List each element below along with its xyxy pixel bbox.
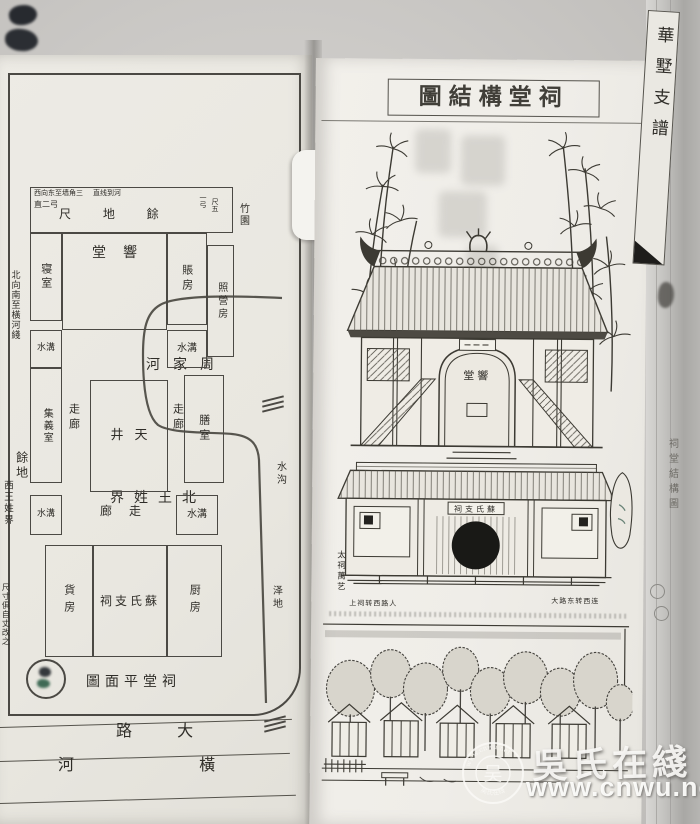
book-spine: 華墅支譜 祠堂結構圖 <box>646 0 700 824</box>
bamboo-garden-label: 竹園 <box>237 203 248 227</box>
corner-seal-circle <box>26 659 66 699</box>
room-gutter-sw: 水溝 <box>30 495 62 535</box>
measure-small-3: 直二弓 <box>34 201 58 209</box>
room-bedroom: 寝室 <box>30 233 62 321</box>
measure-right-1: 一弓 <box>199 194 206 208</box>
corner-ink-mark <box>4 28 38 52</box>
caption-left: 上祠转西路人 <box>349 600 397 608</box>
measure-center: 尺 地 餘 <box>59 208 173 221</box>
margin-note-west-boundary: 西王姓界 <box>2 480 12 526</box>
corridor-west-label: 走廊 <box>68 403 80 433</box>
watermark-url: www.cnwu.net <box>526 772 700 803</box>
room-duty: 照營房 <box>207 245 234 357</box>
spine-title: 華墅支譜 <box>647 25 672 150</box>
room-courtyard: 井天 <box>90 380 168 492</box>
break-mark-upper <box>262 395 284 413</box>
room-dining: 膳室 <box>184 375 224 483</box>
right-page: 圖結構堂祠 <box>309 58 648 824</box>
spine-inner-caption: 祠堂結構圖 <box>666 438 677 513</box>
page-title: 圖結構堂祠 <box>419 85 569 110</box>
left-page: 河家周 界姓王北 西向东至墙角三 直线到河 直二弓 尺 地 餘 一弓 尺五 竹園… <box>0 55 312 824</box>
caption-right: 大路东转西连 <box>551 598 599 606</box>
ridge-band <box>374 251 582 269</box>
svg-text:吴: 吴 <box>483 763 502 785</box>
side-note: 太祠萬艺 <box>335 550 344 592</box>
margin-note-spare-land-w: 餘地 <box>15 451 28 481</box>
bottom-river-label: 河 橫 <box>58 757 275 774</box>
measure-small-1: 西向东至墙角三 <box>34 190 83 197</box>
measure-small-2: 直线到河 <box>93 190 121 197</box>
spine-title-strip: 華墅支譜 <box>632 10 679 265</box>
fence <box>324 758 366 772</box>
road-label: 路 大 <box>116 723 213 740</box>
title-rule <box>321 120 641 124</box>
arch-niche <box>439 347 516 447</box>
measure-band: 西向东至墙角三 直线到河 直二弓 尺 地 餘 一弓 尺五 <box>30 187 233 233</box>
room-main-hall: 堂響 <box>62 233 167 330</box>
moon-gate <box>452 521 500 569</box>
arch-plaque-text: 堂響 <box>463 368 491 382</box>
room-gutter-se: 水溝 <box>176 495 218 535</box>
margin-note-ditch: 水沟 <box>274 461 285 487</box>
watermark-seal: www.cnwu.net 吴氏在线 吴 <box>460 740 526 806</box>
measure-right-2: 尺五 <box>211 198 218 212</box>
room-kitchen: 厨房 <box>167 545 222 657</box>
plan-caption: 圖面平堂祠 <box>86 675 181 690</box>
margin-note-north-line: 北向南至橫河綫 <box>9 270 18 340</box>
gate-plaque-text: 祠支氏蘇 <box>454 504 498 514</box>
room-gutter-ne: 水溝 <box>167 330 207 368</box>
spine-ink-mark <box>657 281 676 309</box>
break-mark-road <box>264 715 286 733</box>
hall-elevation-drawing: 堂響 祠支氏蘇 <box>319 124 639 587</box>
margin-note-marsh: 泽地 <box>270 585 281 611</box>
book-photo: 河家周 界姓王北 西向东至墙角三 直线到河 直二弓 尺 地 餘 一弓 尺五 竹園… <box>0 0 700 824</box>
corridor-south-label: 廊走 <box>100 505 158 518</box>
svg-text:吴氏在线: 吴氏在线 <box>479 785 506 797</box>
room-meeting: 集義室 <box>30 368 62 483</box>
corridor-east-label: 走廊 <box>172 403 184 433</box>
room-gutter-nw: 水溝 <box>30 330 62 368</box>
side-blob <box>610 473 632 549</box>
tree-canopies <box>326 646 633 721</box>
punch-ring <box>650 584 665 599</box>
punch-ring <box>654 606 669 621</box>
margin-note-measures: 尺寸俱自丈改之 <box>1 583 9 646</box>
room-account: 賬房 <box>167 233 207 325</box>
river-line-bottom <box>0 795 296 804</box>
title-box: 圖結構堂祠 <box>387 79 599 118</box>
room-goods: 貨房 <box>45 545 93 657</box>
room-shrine: 祠支氏蘇 <box>93 545 167 657</box>
corner-ink-mark <box>8 3 39 27</box>
